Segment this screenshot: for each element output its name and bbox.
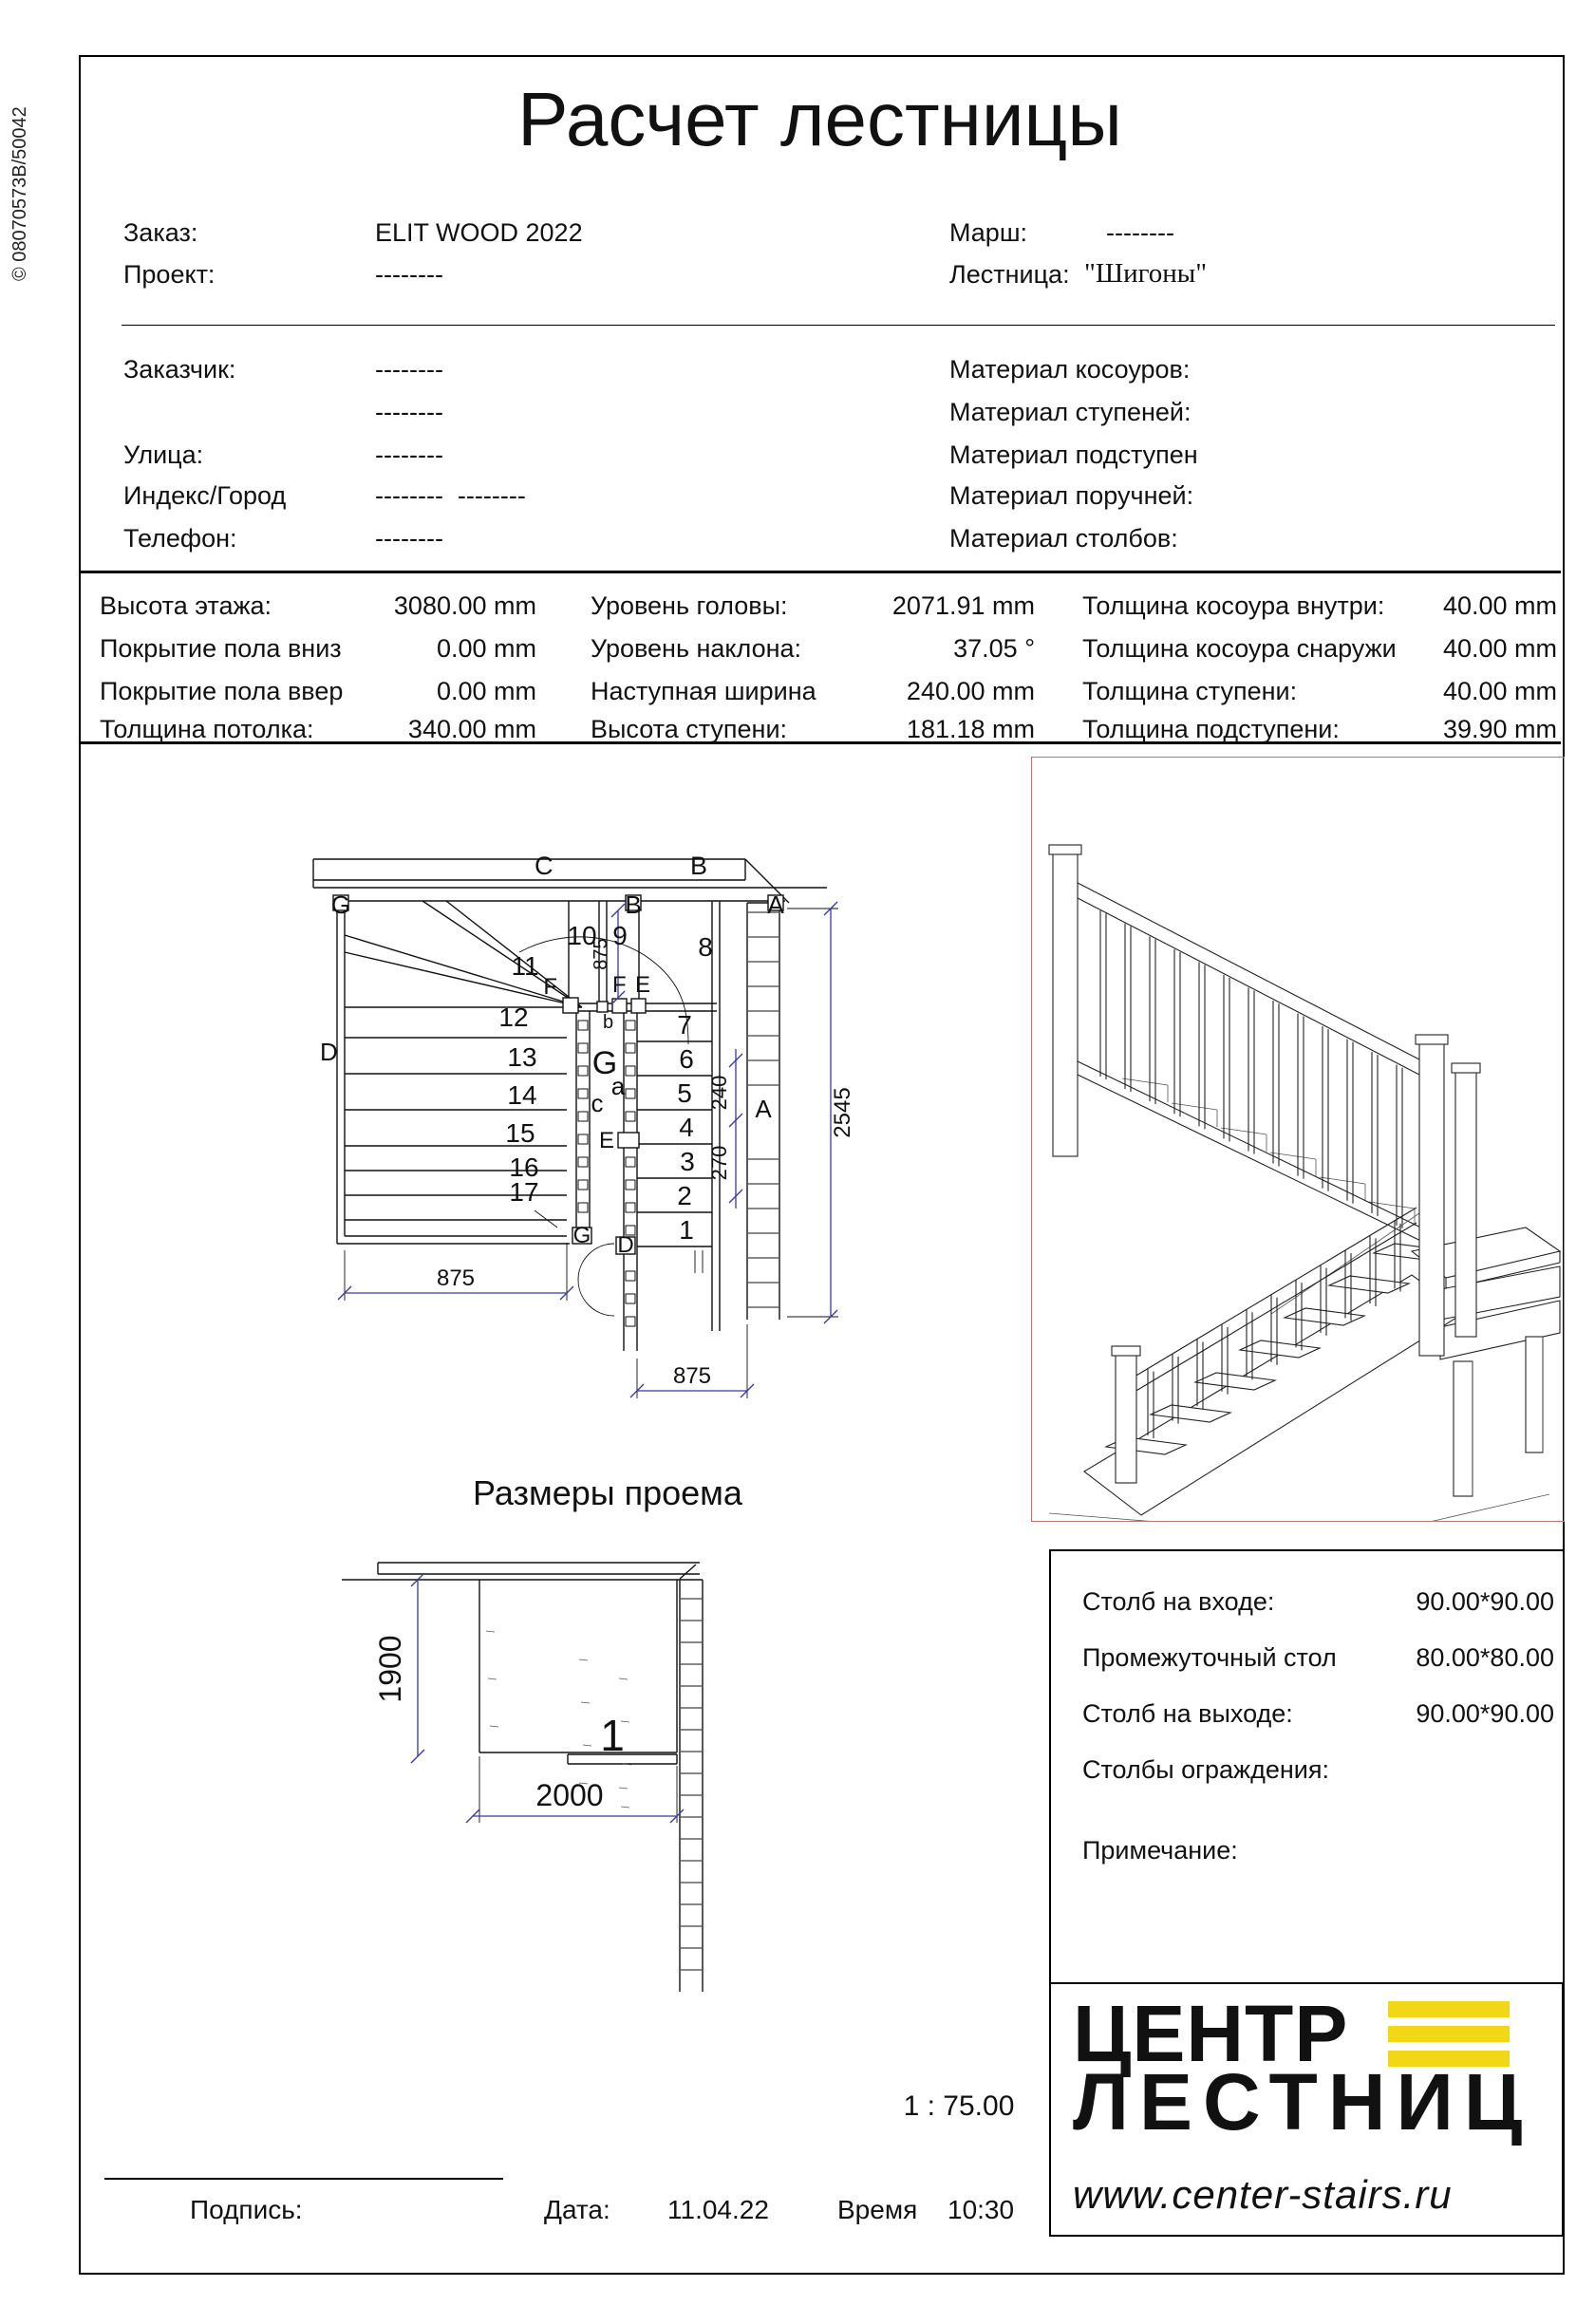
table-border-top [81, 571, 1561, 573]
param-label: Толщина ступени: [1082, 677, 1297, 706]
material-treads-label: Материал ступеней: [949, 398, 1191, 427]
material-stringers-label: Материал косоуров: [949, 355, 1190, 384]
param-value: 40.00 mm [1320, 634, 1557, 664]
param-label: Толщина подступени: [1082, 715, 1340, 744]
step-number: 11 [511, 951, 538, 981]
post-mid-value: 80.00*80.00 [1305, 1643, 1554, 1673]
param-value: 240.00 mm [788, 677, 1035, 706]
staircase-3d-view [1032, 758, 1564, 1521]
dim-270: 270 [707, 1146, 731, 1181]
street-value: -------- [375, 440, 443, 470]
param-value: 2071.91 mm [788, 591, 1035, 621]
order-value: ELIT WOOD 2022 [375, 218, 583, 248]
step-number: 8 [698, 932, 713, 962]
dim-875-left: 875 [437, 1265, 475, 1291]
param-label: Уровень головы: [591, 591, 788, 621]
param-label: Уровень наклона: [591, 634, 801, 664]
param-label: Высота ступени: [591, 715, 787, 744]
dim-1900: 1900 [373, 1635, 407, 1702]
plan-letter: a [611, 1072, 626, 1100]
material-risers-label: Материал подступен [949, 440, 1198, 470]
step-number: 1 [679, 1215, 694, 1245]
param-value: 40.00 mm [1320, 591, 1557, 621]
zip-city-label: Индекс/Город [123, 481, 286, 511]
logo-line2: ЛЕСТНИЦ [1073, 2062, 1532, 2142]
step-number: 15 [505, 1118, 535, 1148]
step-number: 14 [507, 1080, 536, 1110]
plan-letter: G [573, 1223, 591, 1248]
order-label: Заказ: [123, 218, 197, 248]
param-value: 3080.00 mm [285, 591, 536, 621]
plan-letter: G [331, 890, 350, 919]
project-value: -------- [375, 260, 443, 290]
march-label: Марш: [949, 218, 1027, 248]
march-value: -------- [1106, 218, 1174, 248]
post-exit-label: Столб на выходе: [1082, 1699, 1293, 1729]
param-label: Высота этажа: [100, 591, 272, 621]
date-label: Дата: [544, 2195, 610, 2225]
document-code: © 08070573B/50042 [9, 106, 31, 281]
logo-url: www.center-stairs.ru [1073, 2172, 1453, 2218]
step-number: 17 [509, 1177, 538, 1207]
material-posts-label: Материал столбов: [949, 524, 1178, 553]
step-number: 2 [677, 1181, 692, 1210]
customer-value2: -------- [375, 398, 443, 427]
plan-letter: E [599, 1128, 614, 1153]
scale-text: 1 : 75.00 [873, 2090, 1044, 2123]
post-entry-value: 90.00*90.00 [1305, 1587, 1554, 1617]
param-value: 39.90 mm [1320, 715, 1557, 744]
step-number: 9 [612, 921, 628, 950]
phone-label: Телефон: [123, 524, 237, 553]
lower-treads [1106, 1244, 1454, 1454]
note-label: Примечание: [1082, 1836, 1238, 1865]
step-number: 4 [679, 1113, 694, 1142]
plan-letter: F [612, 972, 627, 998]
step-number: 13 [507, 1042, 536, 1072]
railing-posts-label: Столбы ограждения: [1082, 1755, 1329, 1785]
upper-balusters [1100, 910, 1402, 1228]
step-number: 5 [677, 1078, 692, 1108]
plan-letter: D [320, 1038, 338, 1066]
street-label: Улица: [123, 440, 203, 470]
plan-letter: A [767, 890, 784, 919]
time-label: Время [837, 2195, 917, 2225]
material-handrails-label: Материал поручней: [949, 481, 1193, 511]
zip-city-value: -------- -------- [375, 481, 526, 511]
step-number: 12 [498, 1003, 528, 1032]
param-value: 181.18 mm [788, 715, 1035, 744]
dim-2000: 2000 [535, 1778, 603, 1812]
param-value: 37.05 ° [788, 634, 1035, 664]
step-number: 7 [677, 1010, 692, 1040]
customer-value: -------- [375, 355, 443, 384]
param-label: Толщина потолка: [100, 715, 314, 744]
post-exit-value: 90.00*90.00 [1305, 1699, 1554, 1729]
calculation-sheet: © 08070573B/50042 Расчет лестницы Заказ:… [0, 0, 1595, 2324]
plan-letter: b [603, 1012, 613, 1033]
post-mid-label: Промежуточный стол [1082, 1643, 1337, 1673]
dim-2545: 2545 [830, 1087, 855, 1137]
opening-number: 1 [600, 1711, 625, 1760]
dim-875-right: 875 [673, 1363, 711, 1389]
signature-label: Подпись: [190, 2195, 303, 2225]
plan-letter: E [635, 972, 650, 998]
param-value: 0.00 mm [285, 634, 536, 664]
signature-line [104, 2178, 503, 2180]
plan-letter: C [535, 852, 554, 880]
step-number: 6 [679, 1044, 694, 1074]
dim-875-top: 875 [591, 938, 611, 969]
dim-240: 240 [707, 1076, 731, 1111]
dimension-lines [338, 902, 837, 1397]
param-value: 340.00 mm [285, 715, 536, 744]
plan-drawing: C B G B A D F b F E E G c a G D A 1 2 3 … [280, 821, 888, 1410]
date-value: 11.04.22 [667, 2195, 769, 2225]
opening-drawing: 1900 2000 1 [285, 1546, 816, 2011]
logo-bar [1388, 2026, 1510, 2042]
plan-letter: F [543, 974, 557, 1000]
param-value: 0.00 mm [285, 677, 536, 706]
opening-title: Размеры проема [342, 1473, 873, 1513]
plan-letter: D [617, 1232, 633, 1258]
param-value: 40.00 mm [1320, 677, 1557, 706]
logo-bar [1388, 2001, 1510, 2017]
step-number: 3 [680, 1147, 695, 1176]
divider [122, 325, 1555, 326]
phone-value: -------- [375, 524, 443, 553]
plan-letter: c [591, 1089, 604, 1117]
stair-name: "Шигоны" [1084, 258, 1207, 290]
post-entry-label: Столб на входе: [1082, 1587, 1274, 1617]
stair-label: Лестница: [949, 260, 1070, 290]
3d-view-frame [1031, 757, 1565, 1522]
time-value: 10:30 [948, 2195, 1014, 2225]
wall-hatch [680, 1580, 703, 1992]
plan-letter: B [625, 890, 641, 919]
lower-balusters [1148, 1221, 1400, 1438]
param-label: Наступная ширина [591, 677, 816, 706]
customer-label: Заказчик: [123, 355, 235, 384]
plan-letter: A [755, 1095, 772, 1123]
page-title: Расчет лестницы [79, 76, 1561, 163]
project-label: Проект: [123, 260, 215, 290]
plan-letter: B [690, 852, 707, 880]
